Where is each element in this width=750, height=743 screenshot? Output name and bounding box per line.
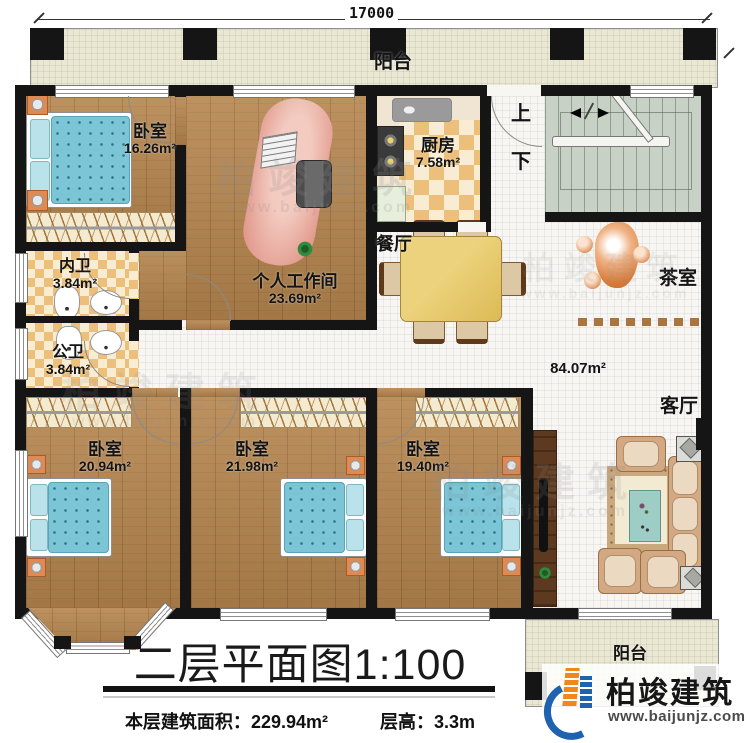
closet [240, 397, 368, 428]
inner-bath-label: 内卫3.84m² [35, 258, 115, 292]
kitchen-fridge [377, 186, 406, 222]
pillow [30, 484, 48, 516]
title-underline [103, 686, 495, 692]
dimension-tick [723, 47, 734, 58]
logo-icon [544, 666, 604, 734]
sculpture-stone [584, 272, 601, 289]
logo-name: 柏竣建筑 [606, 668, 746, 712]
bedroom-top-label: 卧室16.26m² [100, 122, 200, 157]
nightstand [502, 456, 521, 475]
column [30, 28, 64, 60]
nightstand [27, 94, 48, 115]
window [395, 608, 490, 621]
pillow [30, 119, 50, 159]
title-info-line: 本层建筑面积：229.94m² 层高：3.3m [80, 708, 520, 734]
kitchen-label: 厨房7.58m² [398, 136, 478, 171]
dining-chair [498, 262, 526, 296]
workspace-label: 个人工作间23.69m² [215, 272, 375, 307]
pillow [346, 519, 364, 551]
window [220, 608, 327, 621]
window [233, 85, 355, 98]
door-opening [129, 341, 139, 387]
mattress [48, 482, 109, 553]
sofa-cushion [604, 555, 636, 587]
wall [15, 388, 132, 397]
sculpture-stone [576, 236, 593, 253]
bed [26, 478, 112, 557]
balcony-bottom-label: 阳台 [600, 644, 660, 663]
door-opening [129, 253, 139, 299]
wall [366, 388, 377, 619]
area-value: 229.94m² [251, 712, 328, 732]
pillow [502, 484, 520, 516]
wall [521, 388, 533, 619]
column [683, 28, 716, 60]
sofa-cushion [647, 556, 679, 588]
coffee-table [629, 490, 661, 542]
plant-icon [538, 566, 552, 580]
dimension-tick [33, 12, 44, 23]
tea-room-label: 茶室 [656, 268, 700, 289]
wall-right [701, 85, 712, 619]
wall [545, 212, 701, 222]
plant-icon [296, 240, 314, 258]
bay-pier [54, 636, 71, 649]
door-opening [186, 320, 230, 330]
sculpture-stone [633, 246, 650, 263]
wall [425, 388, 533, 397]
sofa-cushion [623, 441, 659, 467]
logo-website: www.baijunjz.com [608, 708, 748, 725]
column [183, 28, 217, 60]
sofa-cushion [672, 497, 698, 531]
tea-divider-dashed [578, 318, 702, 326]
title-underline-light [103, 696, 495, 698]
wall [230, 320, 366, 330]
nightstand [346, 456, 365, 475]
window [15, 450, 28, 537]
pillow [502, 519, 520, 551]
height-value: 3.3m [434, 712, 475, 732]
nightstand [27, 558, 46, 577]
bedroom-left-label: 卧室20.94m² [65, 440, 145, 475]
desk-chair [296, 160, 332, 208]
entry-opening [487, 85, 541, 96]
wall [139, 320, 182, 330]
stairs-down-label: 下 [508, 151, 534, 173]
balcony-top-label: 阳台 [358, 52, 428, 73]
stairs-arrow-right [598, 108, 609, 118]
wall [240, 388, 377, 397]
public-bath-label: 公卫3.84m² [28, 344, 108, 378]
stairs-arrow-left [570, 108, 581, 118]
dimension-tick [701, 12, 712, 23]
closet [26, 397, 132, 428]
living-room-label: 客厅 [657, 396, 701, 417]
column [550, 28, 584, 60]
window [15, 328, 28, 380]
height-label: 层高： [380, 712, 434, 732]
wall-pier [696, 418, 712, 450]
wall [15, 316, 129, 323]
wall [480, 85, 491, 232]
closet [415, 397, 519, 428]
dining-label: 餐厅 [370, 234, 418, 254]
hall-area-label: 84.07m² [545, 361, 611, 378]
door-opening [191, 388, 240, 397]
floor-plan-page: 17000 16180 阳台 上 下 [0, 0, 750, 743]
tv-icon [539, 478, 548, 552]
door-opening [132, 388, 178, 397]
stairs-inner-line [560, 112, 692, 190]
nightstand [346, 557, 365, 576]
wall [366, 222, 458, 232]
logo-tower-blue [580, 676, 592, 708]
nightstand [27, 455, 46, 474]
mattress [444, 482, 502, 553]
bedroom-right-label: 卧室19.40m² [383, 440, 463, 475]
closet [26, 212, 177, 244]
door-opening [458, 222, 486, 232]
mattress [284, 482, 345, 553]
wall [180, 388, 191, 619]
window [15, 253, 28, 303]
nightstand [502, 557, 521, 576]
dimension-top-value: 17000 [345, 4, 398, 22]
sofa-cushion [672, 461, 698, 495]
area-label: 本层建筑面积： [125, 712, 251, 732]
laptop-icon [260, 131, 297, 168]
window [630, 85, 694, 98]
page-title: 二层平面图1:100 [90, 630, 510, 692]
door-opening [377, 388, 425, 397]
nightstand [27, 190, 48, 211]
armchair [598, 548, 642, 594]
armchair [616, 436, 666, 472]
workspace-floor-strip [139, 242, 186, 320]
bedroom-mid-label: 卧室21.98m² [212, 440, 292, 475]
bed [440, 478, 523, 557]
logo: 柏竣建筑 www.baijunjz.com [542, 664, 747, 740]
wall [15, 242, 186, 251]
kitchen-sink [392, 98, 452, 122]
bed [280, 478, 367, 557]
pillow [346, 484, 364, 516]
pillow [30, 519, 48, 551]
